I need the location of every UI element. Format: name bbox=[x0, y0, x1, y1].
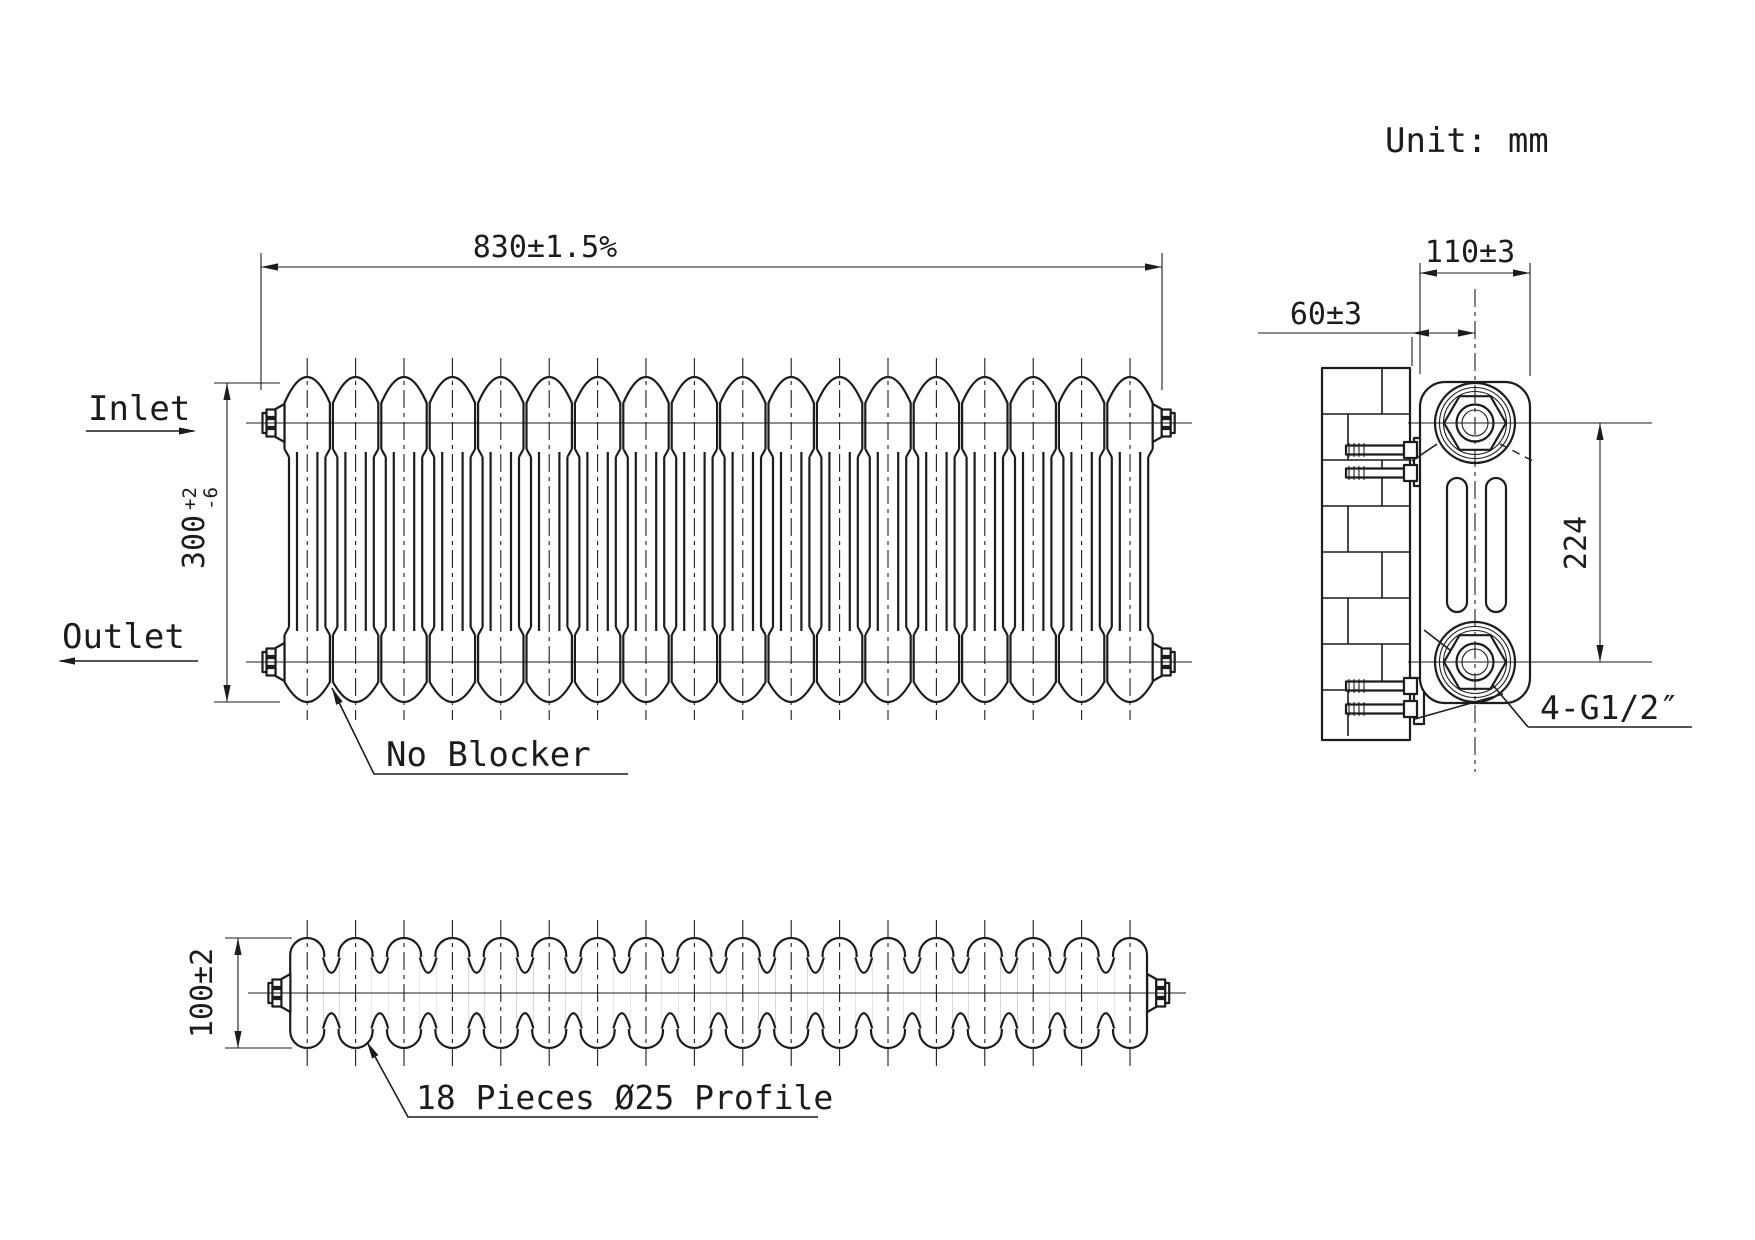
arrowhead bbox=[234, 1031, 241, 1048]
dim-height-tol-plus: +2 bbox=[179, 487, 201, 510]
mounting-bolt bbox=[1346, 469, 1404, 478]
dim-110-text: 110±3 bbox=[1425, 235, 1515, 270]
bolt-head bbox=[1404, 465, 1417, 481]
bolt-head bbox=[1404, 678, 1417, 694]
mounting-bolt bbox=[1346, 682, 1404, 691]
connection-label: 4-G1/2″ bbox=[1540, 688, 1679, 727]
radiator-columns bbox=[285, 358, 1153, 720]
arrowhead bbox=[223, 685, 230, 702]
arrowhead bbox=[1596, 423, 1603, 440]
plan-view: 100±2 18 Pieces Ø25 Profile bbox=[185, 920, 1186, 1117]
dim-height-tol-minus: -6 bbox=[200, 487, 222, 510]
side-view: 110±3 60±3 224 4-G1/2″ bbox=[1258, 235, 1692, 772]
bolt-head bbox=[1404, 701, 1417, 717]
bolt-head bbox=[1404, 442, 1417, 458]
side-slot bbox=[1447, 478, 1467, 612]
mounting-bolt bbox=[1346, 446, 1404, 455]
dim-width-text: 830±1.5% bbox=[473, 230, 618, 265]
unit-label: Unit: mm bbox=[1385, 121, 1549, 161]
inlet-callout: Inlet bbox=[86, 389, 194, 431]
pieces-callout: 18 Pieces Ø25 Profile bbox=[367, 1042, 833, 1117]
arrowhead bbox=[1420, 269, 1437, 276]
side-slot bbox=[1486, 478, 1506, 612]
arrowhead bbox=[1513, 269, 1530, 276]
dim-60-text: 60±3 bbox=[1290, 297, 1362, 332]
mounting-bolt bbox=[1346, 705, 1404, 714]
arrowhead bbox=[234, 938, 241, 955]
arrowhead bbox=[1596, 645, 1603, 662]
front-view: 830±1.5% 300 +2 -6 Inlet Outlet No Block… bbox=[60, 230, 1192, 775]
dim-wall-to-pipe: 60±3 bbox=[1258, 297, 1475, 366]
arrowhead bbox=[1145, 263, 1162, 270]
dim-height-value: 300 bbox=[177, 515, 212, 569]
pieces-label: 18 Pieces Ø25 Profile bbox=[416, 1078, 833, 1117]
dim-pipe-spacing: 224 bbox=[1559, 423, 1600, 662]
dim-depth-text: 100±2 bbox=[185, 948, 220, 1038]
dim-width: 830±1.5% bbox=[261, 230, 1162, 390]
arrowhead bbox=[58, 657, 75, 664]
arrowhead bbox=[261, 263, 278, 270]
arrowhead bbox=[367, 1042, 378, 1059]
technical-drawing: 830±1.5% 300 +2 -6 Inlet Outlet No Block… bbox=[0, 0, 1755, 1240]
outlet-callout: Outlet bbox=[60, 617, 198, 661]
dim-224-text: 224 bbox=[1559, 516, 1594, 570]
inlet-label: Inlet bbox=[88, 389, 190, 429]
no-blocker-label: No Blocker bbox=[386, 735, 591, 775]
arrowhead bbox=[223, 383, 230, 400]
arrowhead bbox=[1458, 329, 1475, 336]
no-blocker-callout: No Blocker bbox=[332, 688, 628, 775]
outlet-label: Outlet bbox=[62, 617, 185, 657]
